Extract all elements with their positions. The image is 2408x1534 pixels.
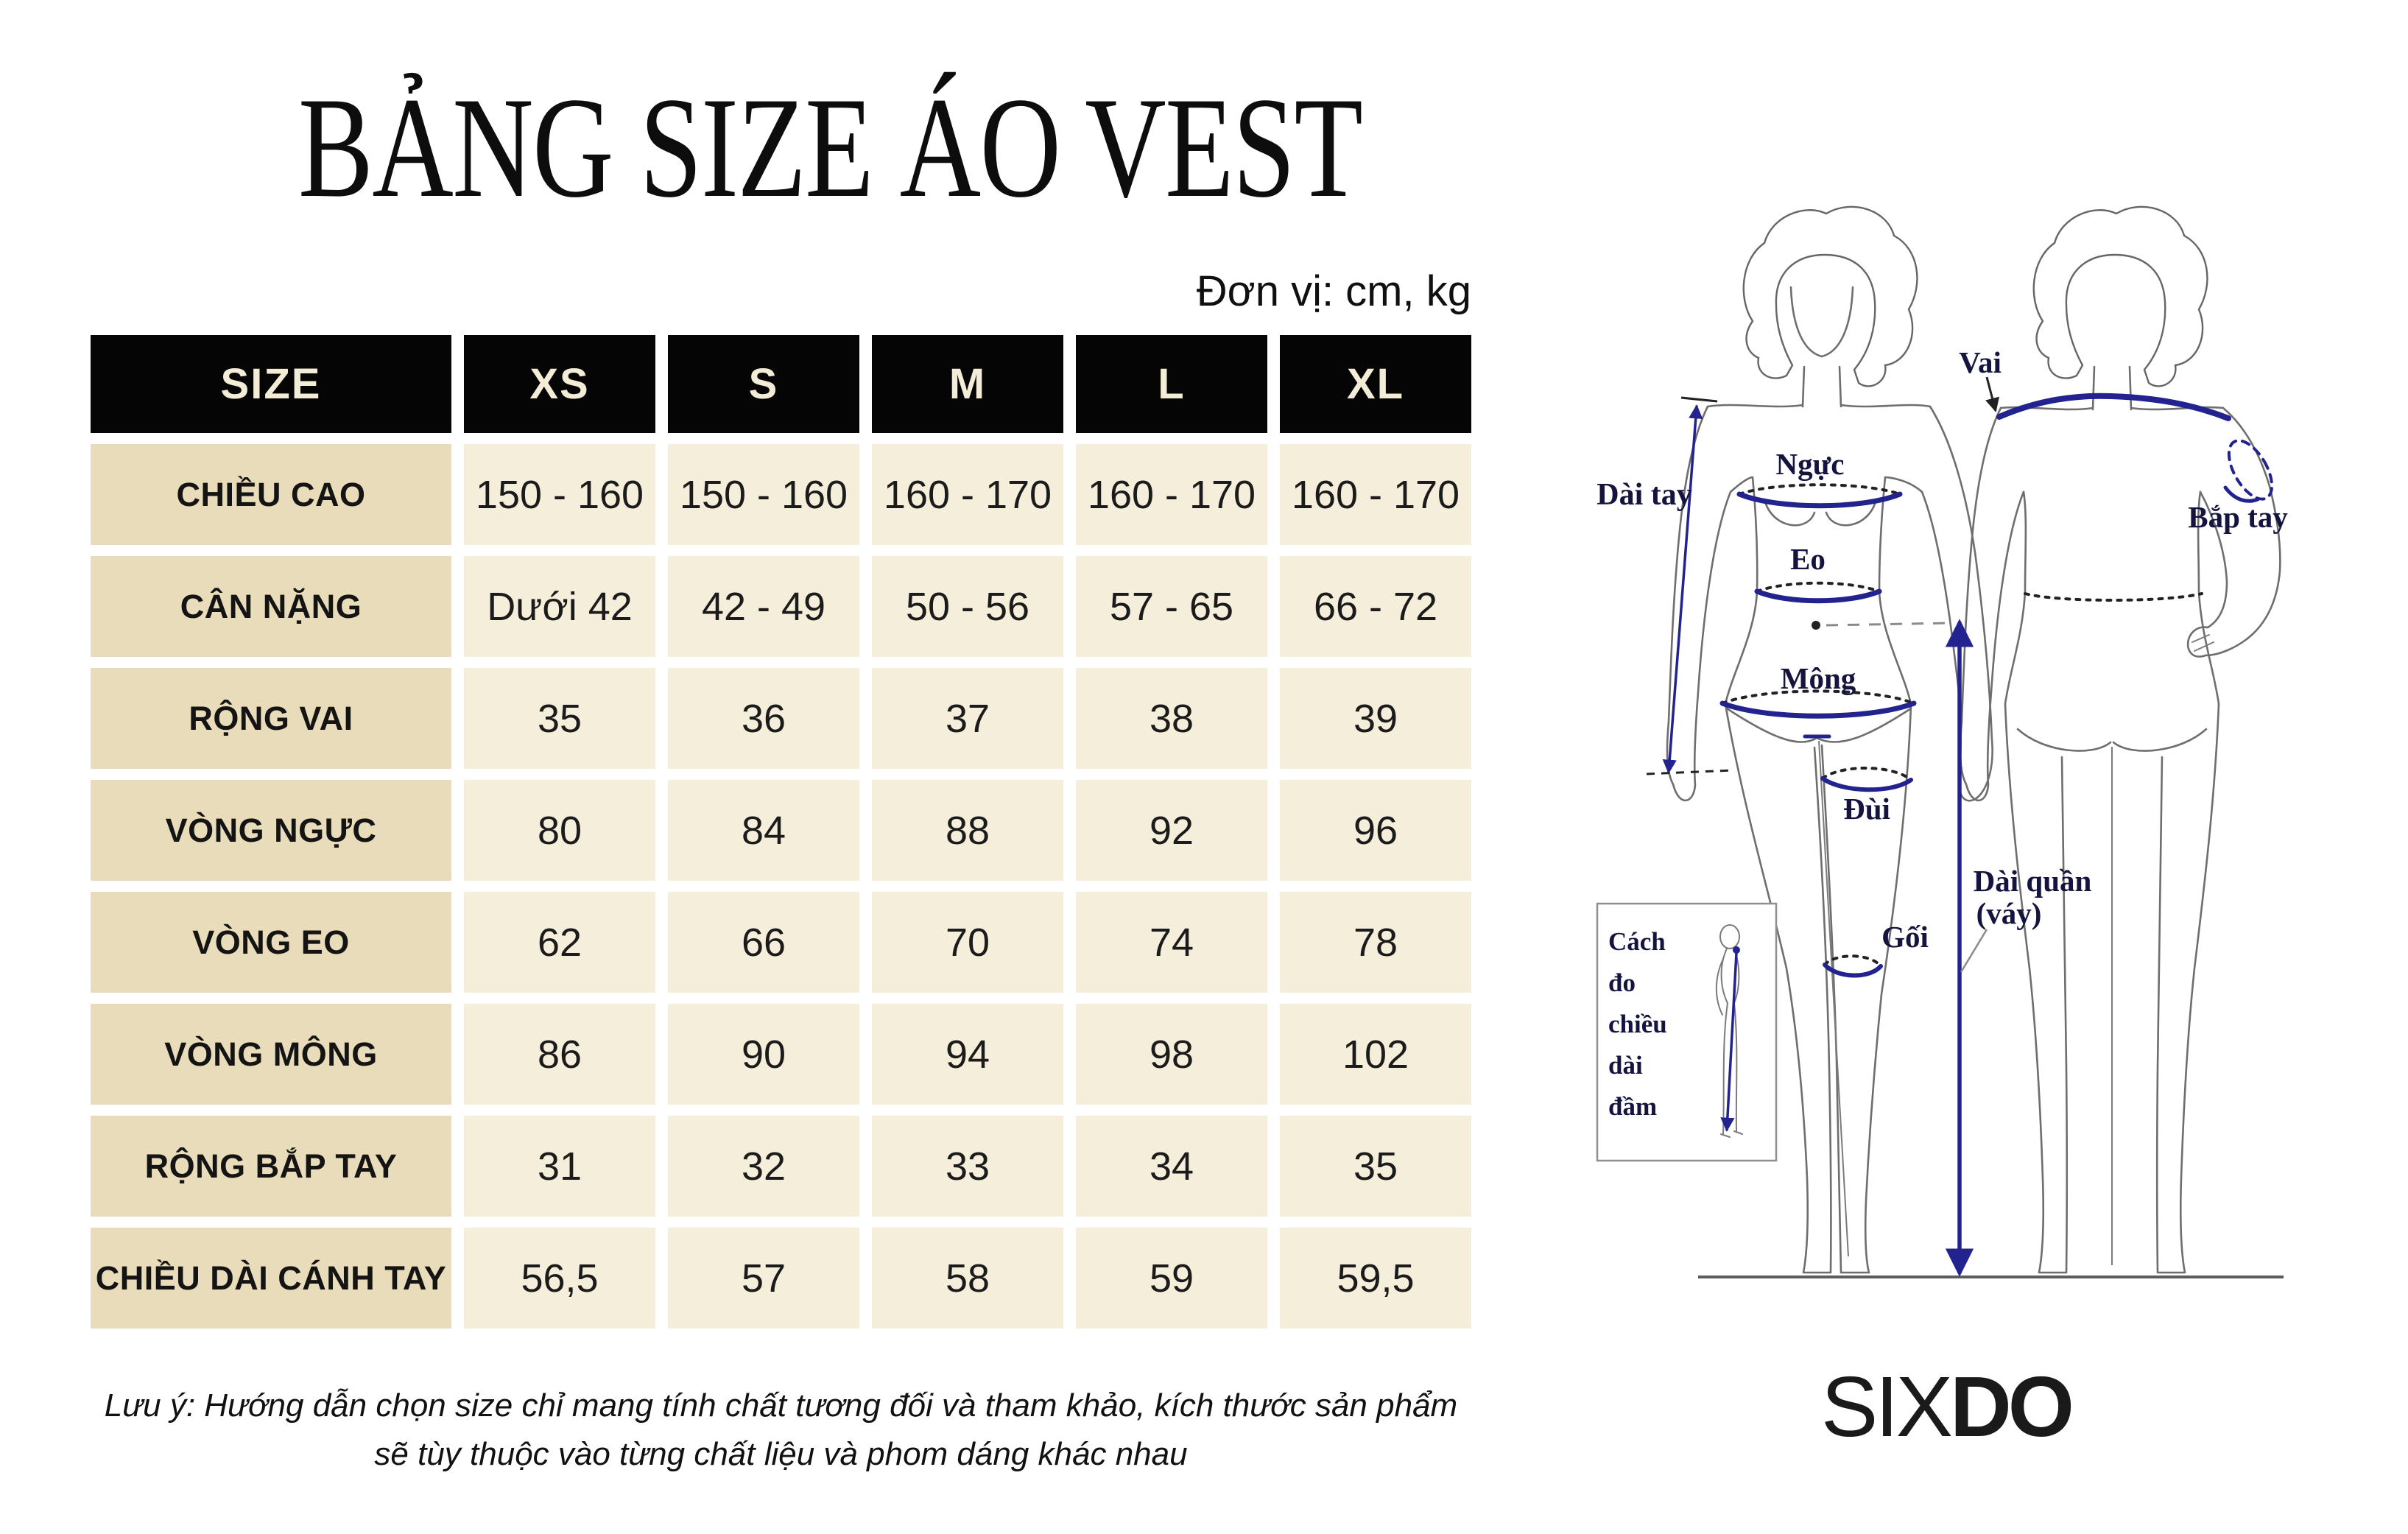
brand-logo-do: DO: [1950, 1359, 2071, 1454]
header-cell-xs: XS: [464, 335, 655, 433]
brand-logo: SIXDO: [1821, 1364, 2071, 1449]
row-label-cell: VÒNG EO: [91, 892, 451, 993]
data-cell: 84: [668, 780, 859, 881]
data-cell: 66: [668, 892, 859, 993]
header-cell-xl: XL: [1280, 335, 1471, 433]
label-goi: Gối: [1881, 920, 1929, 954]
row-label-cell: CHIỀU DÀI CÁNH TAY: [91, 1228, 451, 1329]
data-cell: 98: [1076, 1004, 1267, 1105]
data-cell: 34: [1076, 1116, 1267, 1217]
label-vai: Vai: [1959, 345, 2002, 379]
data-cell: 88: [872, 780, 1063, 881]
data-cell: 57: [668, 1228, 859, 1329]
row-label-cell: CHIỀU CAO: [91, 444, 451, 545]
data-cell: 57 - 65: [1076, 556, 1267, 657]
measure-box: Cách đo chiều dài đầm: [1597, 904, 1776, 1161]
data-cell: 35: [464, 668, 655, 769]
data-cell: 50 - 56: [872, 556, 1063, 657]
row-label-cell: RỘNG VAI: [91, 668, 451, 769]
header-cell-m: M: [872, 335, 1063, 433]
row-label-cell: VÒNG MÔNG: [91, 1004, 451, 1105]
data-cell: Dưới 42: [464, 556, 655, 657]
header-cell-l: L: [1076, 335, 1267, 433]
measure-box-line: đo: [1608, 968, 1636, 997]
data-cell: 102: [1280, 1004, 1471, 1105]
label-dui: Đùi: [1843, 792, 1890, 826]
data-cell: 32: [668, 1116, 859, 1217]
row-label-cell: CÂN NẶNG: [91, 556, 451, 657]
data-cell: 56,5: [464, 1228, 655, 1329]
data-cell: 160 - 170: [1076, 444, 1267, 545]
data-cell: 62: [464, 892, 655, 993]
measurement-diagram-svg: Dài tay Ngực Eo Mông Vai Bắp tay Đùi Gối…: [1510, 184, 2408, 1362]
note-text: Lưu ý: Hướng dẫn chọn size chỉ mang tính…: [91, 1382, 1471, 1479]
label-mong: Mông: [1781, 661, 1856, 695]
size-chart-page: BẢNG SIZE ÁO VEST Đơn vị: cm, kg SIZEXSS…: [0, 0, 2408, 1534]
data-cell: 90: [668, 1004, 859, 1105]
data-cell: 59: [1076, 1228, 1267, 1329]
data-cell: 150 - 160: [464, 444, 655, 545]
dai-tay-arrow: [1647, 398, 1732, 774]
label-nguc: Ngực: [1776, 447, 1845, 481]
data-cell: 37: [872, 668, 1063, 769]
data-cell: 150 - 160: [668, 444, 859, 545]
note-line-1: Lưu ý: Hướng dẫn chọn size chỉ mang tính…: [91, 1382, 1471, 1430]
data-cell: 38: [1076, 668, 1267, 769]
data-cell: 94: [872, 1004, 1063, 1105]
vai-pointer: [1987, 377, 1996, 411]
back-figure: [1960, 207, 2281, 1273]
data-cell: 160 - 170: [1280, 444, 1471, 545]
label-bap-tay: Bắp tay: [2188, 500, 2288, 534]
data-cell: 80: [464, 780, 655, 881]
data-cell: 92: [1076, 780, 1267, 881]
data-cell: 160 - 170: [872, 444, 1063, 545]
label-vay: (váy): [1976, 896, 2042, 930]
data-cell: 78: [1280, 892, 1471, 993]
measure-box-line: chiều: [1608, 1010, 1667, 1038]
data-cell: 58: [872, 1228, 1063, 1329]
data-cell: 74: [1076, 892, 1267, 993]
label-dai-quan: Dài quần: [1974, 864, 2092, 898]
data-cell: 42 - 49: [668, 556, 859, 657]
dai-quan-pointer: [1961, 929, 1987, 972]
note-line-2: sẽ tùy thuộc vào từng chất liệu và phom …: [91, 1430, 1471, 1479]
row-label-cell: RỘNG BẮP TAY: [91, 1116, 451, 1217]
row-label-cell: VÒNG NGỰC: [91, 780, 451, 881]
brand-logo-six: SIX: [1821, 1359, 1950, 1454]
data-cell: 31: [464, 1116, 655, 1217]
measure-box-line: dài: [1608, 1051, 1643, 1080]
size-table: SIZEXSSMLXLCHIỀU CAO150 - 160150 - 16016…: [91, 335, 1471, 1329]
data-cell: 35: [1280, 1116, 1471, 1217]
data-cell: 33: [872, 1116, 1063, 1217]
measure-box-line: Cách: [1608, 927, 1666, 956]
data-cell: 39: [1280, 668, 1471, 769]
measurement-diagram: Dài tay Ngực Eo Mông Vai Bắp tay Đùi Gối…: [1510, 184, 2408, 1362]
data-cell: 70: [872, 892, 1063, 993]
data-cell: 66 - 72: [1280, 556, 1471, 657]
label-eo: Eo: [1790, 542, 1826, 576]
data-cell: 36: [668, 668, 859, 769]
header-cell-size: SIZE: [91, 335, 451, 433]
data-cell: 86: [464, 1004, 655, 1105]
data-cell: 96: [1280, 780, 1471, 881]
page-title: BẢNG SIZE ÁO VEST: [298, 76, 1362, 220]
header-cell-s: S: [668, 335, 859, 433]
measure-box-line: đầm: [1608, 1092, 1657, 1121]
unit-label: Đơn vị: cm, kg: [1029, 267, 1471, 316]
data-cell: 59,5: [1280, 1228, 1471, 1329]
label-dai-tay: Dài tay: [1596, 478, 1692, 512]
